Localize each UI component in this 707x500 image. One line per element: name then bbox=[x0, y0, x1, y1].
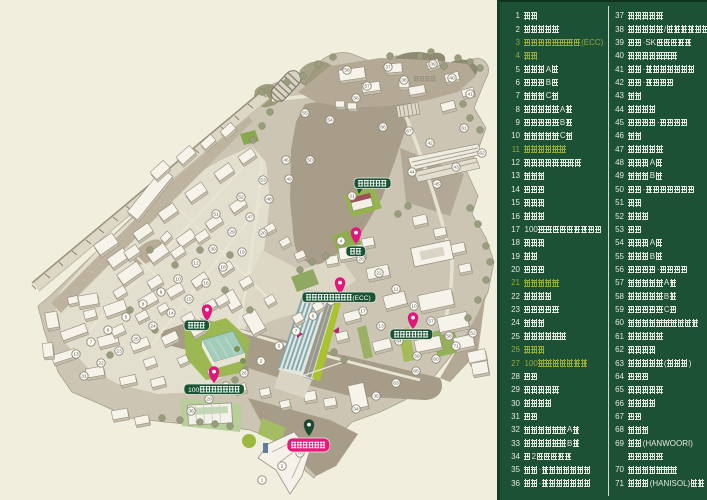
svg-text:7: 7 bbox=[90, 340, 93, 346]
svg-text:22: 22 bbox=[98, 361, 104, 367]
svg-text:25: 25 bbox=[133, 337, 139, 343]
svg-text:50: 50 bbox=[307, 158, 313, 164]
svg-text:46: 46 bbox=[283, 158, 289, 164]
svg-text:13: 13 bbox=[73, 352, 79, 358]
svg-text:12: 12 bbox=[193, 261, 199, 267]
svg-text:6: 6 bbox=[107, 328, 110, 334]
svg-text:51: 51 bbox=[213, 212, 219, 218]
svg-text:55: 55 bbox=[302, 111, 308, 117]
svg-text:21: 21 bbox=[349, 194, 355, 200]
svg-text:47: 47 bbox=[247, 215, 253, 221]
svg-text:24: 24 bbox=[150, 324, 156, 330]
svg-text:67: 67 bbox=[406, 129, 412, 135]
svg-text:26: 26 bbox=[241, 371, 247, 377]
svg-text:53: 53 bbox=[260, 178, 266, 184]
svg-text:28: 28 bbox=[358, 257, 364, 263]
svg-text:58: 58 bbox=[344, 68, 350, 74]
svg-text:65: 65 bbox=[413, 369, 419, 375]
svg-text:62: 62 bbox=[479, 151, 485, 157]
svg-text:34: 34 bbox=[353, 407, 359, 413]
svg-text:4: 4 bbox=[340, 239, 343, 245]
svg-text:14: 14 bbox=[168, 311, 174, 317]
svg-text:16: 16 bbox=[203, 281, 209, 287]
svg-text:40: 40 bbox=[449, 76, 455, 82]
svg-text:23: 23 bbox=[116, 349, 122, 355]
svg-text:42: 42 bbox=[427, 141, 433, 147]
svg-text:30: 30 bbox=[210, 247, 216, 253]
svg-text:44: 44 bbox=[409, 170, 415, 176]
svg-text:49: 49 bbox=[286, 177, 292, 183]
svg-text:52: 52 bbox=[238, 195, 244, 201]
svg-text:35: 35 bbox=[373, 394, 379, 400]
svg-text:6: 6 bbox=[312, 314, 315, 320]
svg-text:36: 36 bbox=[188, 409, 194, 415]
svg-text:20: 20 bbox=[260, 231, 266, 237]
svg-text:18: 18 bbox=[220, 265, 226, 271]
svg-text:57: 57 bbox=[428, 319, 434, 325]
svg-text:2: 2 bbox=[281, 464, 284, 470]
svg-text:1: 1 bbox=[261, 478, 264, 484]
svg-text:71: 71 bbox=[453, 344, 459, 350]
svg-text:19: 19 bbox=[239, 250, 245, 256]
svg-text:59: 59 bbox=[414, 354, 420, 360]
svg-text:9: 9 bbox=[160, 290, 163, 296]
svg-text:56: 56 bbox=[353, 96, 359, 102]
svg-text:7: 7 bbox=[295, 329, 298, 335]
svg-text:57: 57 bbox=[364, 84, 370, 90]
svg-text:37: 37 bbox=[385, 65, 391, 71]
svg-text:29: 29 bbox=[206, 397, 212, 403]
svg-text:58: 58 bbox=[446, 334, 452, 340]
svg-text:61: 61 bbox=[461, 126, 467, 132]
svg-text:43: 43 bbox=[453, 165, 459, 171]
svg-text:11: 11 bbox=[394, 287, 399, 293]
svg-text:45: 45 bbox=[434, 182, 440, 188]
svg-text:60: 60 bbox=[433, 357, 439, 363]
svg-text:10: 10 bbox=[175, 277, 181, 283]
svg-text:41: 41 bbox=[467, 92, 473, 98]
svg-text:5: 5 bbox=[125, 315, 128, 321]
svg-text:(ECC): (ECC) bbox=[352, 295, 370, 302]
svg-text:63: 63 bbox=[393, 381, 399, 387]
svg-text:15: 15 bbox=[186, 297, 192, 303]
svg-text:10: 10 bbox=[411, 304, 417, 310]
svg-text:2: 2 bbox=[260, 359, 263, 365]
svg-text:39: 39 bbox=[430, 62, 436, 68]
svg-text:22: 22 bbox=[376, 271, 382, 277]
svg-text:31: 31 bbox=[81, 374, 87, 380]
svg-text:5: 5 bbox=[278, 344, 281, 350]
svg-text:54: 54 bbox=[327, 118, 333, 124]
svg-text:8: 8 bbox=[142, 302, 145, 308]
svg-text:48: 48 bbox=[266, 197, 272, 203]
svg-text:17: 17 bbox=[360, 309, 366, 315]
svg-text:13: 13 bbox=[378, 324, 384, 330]
svg-text:52: 52 bbox=[470, 331, 476, 337]
svg-text:38: 38 bbox=[401, 78, 407, 84]
svg-text:29: 29 bbox=[229, 230, 235, 236]
svg-text:100: 100 bbox=[188, 387, 200, 394]
svg-text:66: 66 bbox=[380, 125, 386, 131]
